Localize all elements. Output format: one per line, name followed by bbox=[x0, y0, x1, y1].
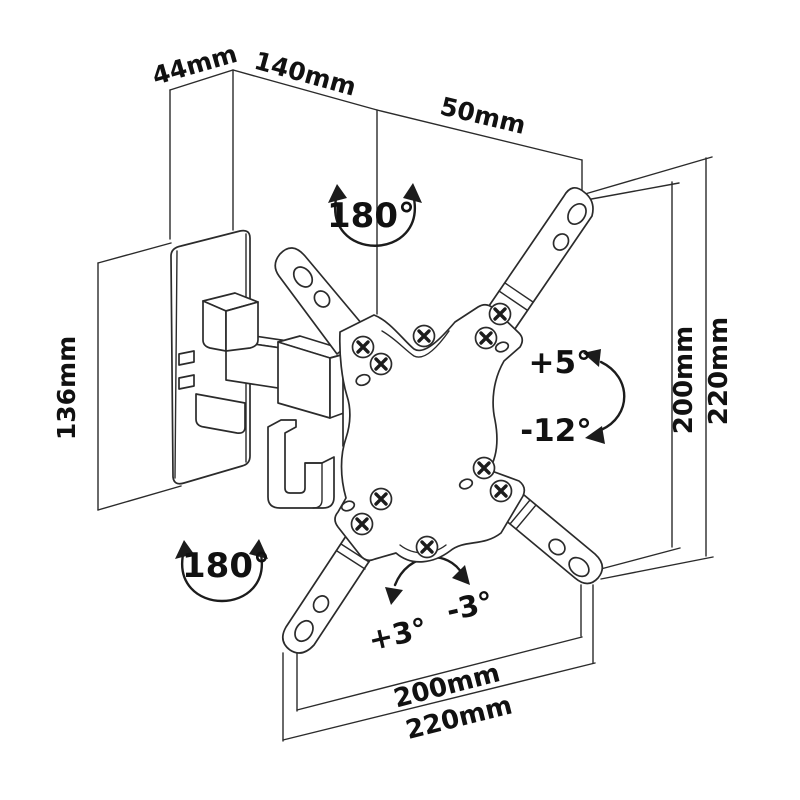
dim-label-200mm-right: 200mm bbox=[669, 326, 699, 434]
cable-clip bbox=[268, 420, 334, 508]
wall-mount-technical-drawing: 44mm 140mm 50mm 136mm 200mm 220mm 200mm … bbox=[0, 0, 800, 800]
arrowhead bbox=[385, 587, 403, 605]
plate-slot bbox=[179, 375, 194, 389]
dim-label-140mm: 140mm bbox=[251, 46, 359, 102]
pivot-block-side bbox=[226, 302, 258, 351]
vesa-plate bbox=[335, 304, 524, 562]
angle-label-minus12: -12° bbox=[520, 413, 592, 449]
angle-label-180-bottom: 180° bbox=[182, 546, 270, 586]
angle-label-plus3: +3° bbox=[365, 611, 430, 657]
arrowhead bbox=[452, 565, 470, 585]
dim-label-44mm: 44mm bbox=[149, 39, 241, 91]
angle-label-minus3: -3° bbox=[443, 584, 496, 628]
diagram-canvas: 44mm 140mm 50mm 136mm 200mm 220mm 200mm … bbox=[0, 0, 800, 800]
dim-label-220mm-right: 220mm bbox=[704, 317, 734, 425]
dim-label-50mm: 50mm bbox=[437, 91, 528, 139]
angle-label-180-top: 180° bbox=[327, 196, 415, 236]
tilt-arc bbox=[601, 362, 624, 430]
dim-label-136mm: 136mm bbox=[52, 336, 81, 440]
angle-label-plus5: +5° bbox=[528, 345, 591, 381]
plate-slot bbox=[179, 351, 194, 365]
